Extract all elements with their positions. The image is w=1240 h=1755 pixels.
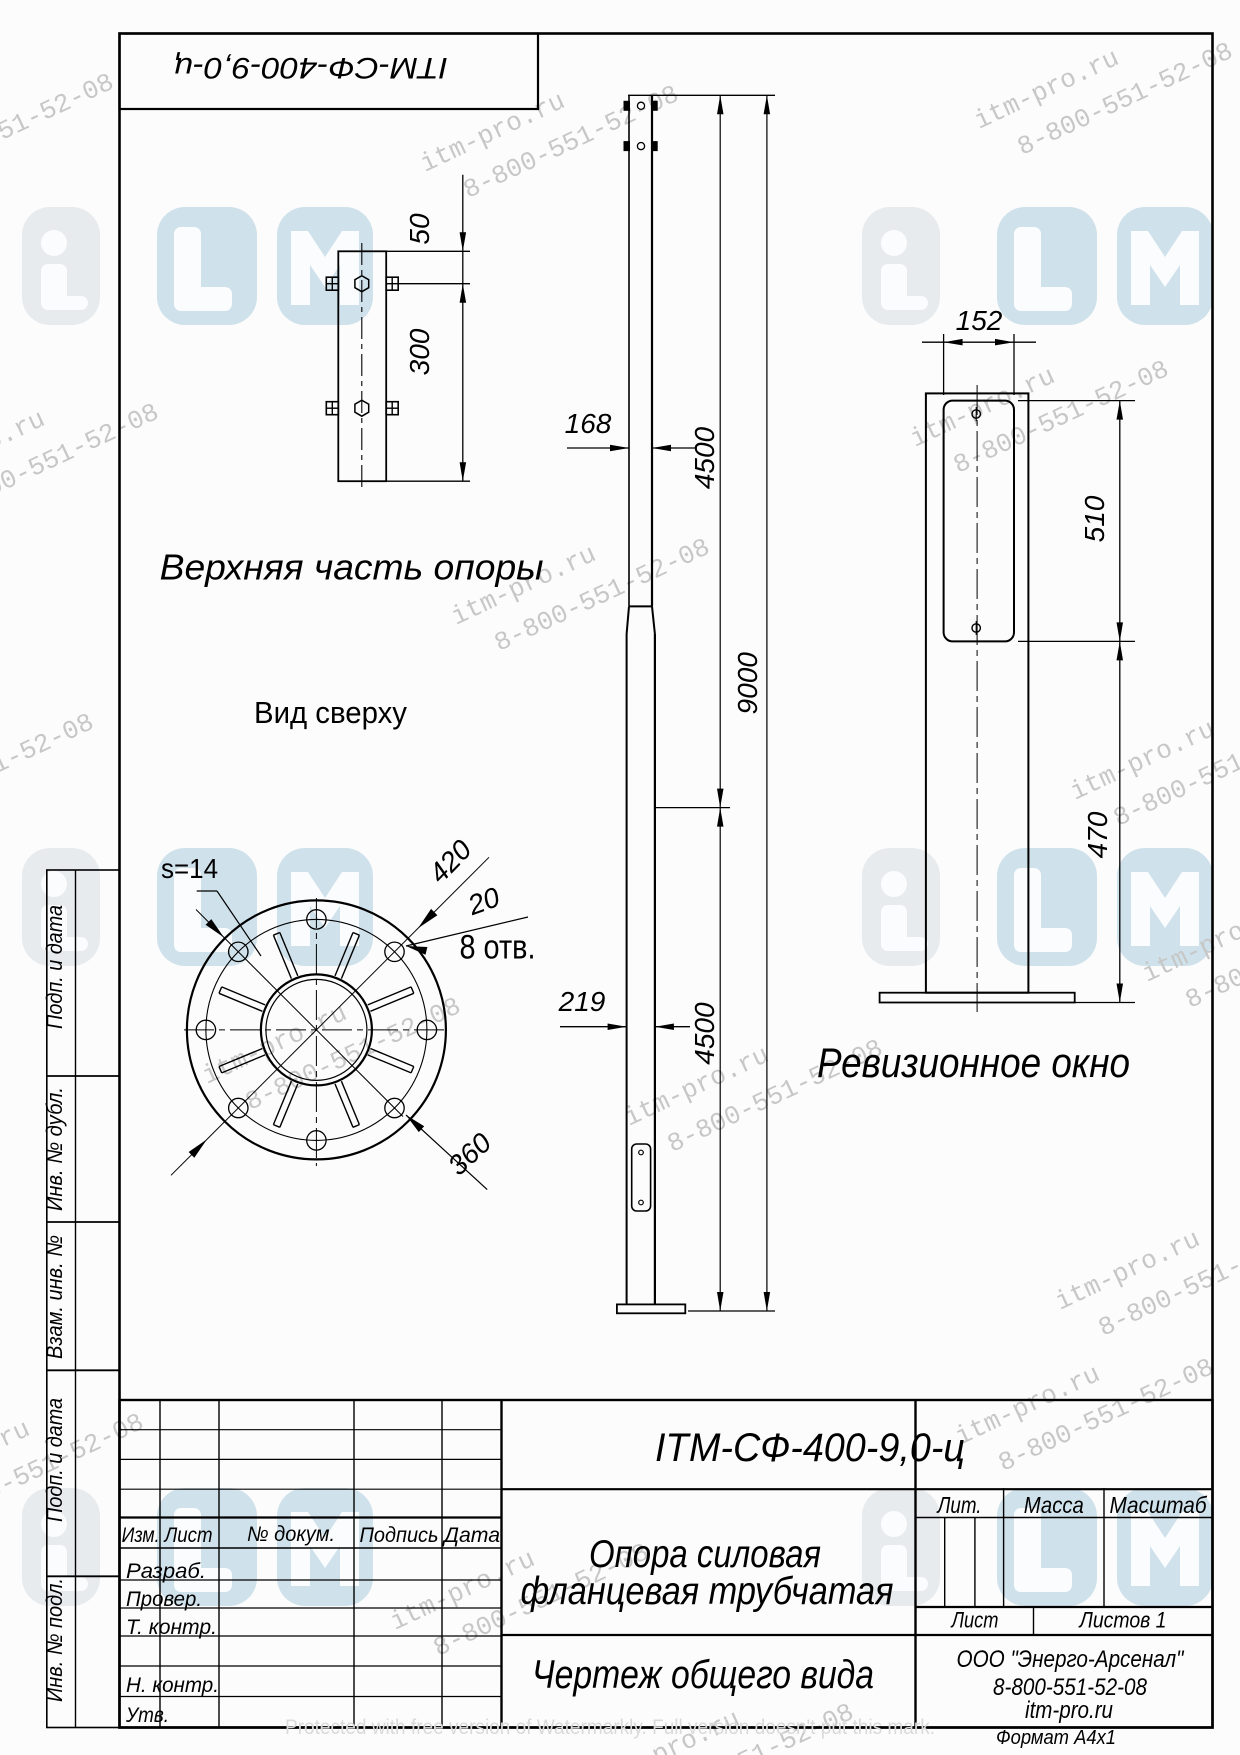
svg-text:Подп. и дата: Подп. и дата [42,1398,67,1522]
svg-text:Инв. № дубл.: Инв. № дубл. [42,1087,67,1211]
svg-text:Лист: Лист [163,1524,213,1547]
svg-text:ООО "Энерго-Арсенал": ООО "Энерго-Арсенал" [957,1646,1185,1673]
svg-text:Масса: Масса [1024,1492,1084,1518]
svg-text:Лит.: Лит. [936,1492,982,1518]
svg-text:Инв. № подл.: Инв. № подл. [42,1578,67,1702]
svg-text:8 отв.: 8 отв. [460,929,536,967]
svg-text:Утв.: Утв. [125,1704,169,1727]
svg-text:Вид сверху: Вид сверху [254,695,407,730]
svg-text:фланцевая трубчатая: фланцевая трубчатая [521,1570,894,1613]
svg-text:Масштаб: Масштаб [1110,1492,1208,1518]
svg-text:168: 168 [565,408,612,439]
svg-text:510: 510 [1079,495,1110,542]
svg-text:ІТМ-СФ-400-9,0-ц: ІТМ-СФ-400-9,0-ц [655,1426,965,1470]
svg-text:itm-pro.ru: itm-pro.ru [1025,1697,1113,1724]
svg-text:Листов 1: Листов 1 [1078,1608,1167,1633]
svg-text:470: 470 [1082,811,1113,858]
svg-text:s=14: s=14 [161,853,218,884]
svg-text:Дата: Дата [442,1524,500,1547]
svg-text:Protected with free version of: Protected with free version of Watermark… [285,1716,935,1739]
svg-text:Ревизионное окно: Ревизионное окно [817,1039,1130,1086]
svg-text:4500: 4500 [689,426,720,489]
svg-text:219: 219 [558,986,606,1017]
svg-text:300: 300 [404,328,435,375]
svg-text:Подпись: Подпись [360,1524,439,1547]
svg-text:Разраб.: Разраб. [126,1560,206,1583]
svg-text:Взам. инв. №: Взам. инв. № [42,1235,67,1359]
svg-text:Н. контр.: Н. контр. [126,1674,219,1697]
svg-text:№ докум.: № докум. [247,1523,335,1546]
svg-text:Подп. и дата: Подп. и дата [42,905,67,1029]
svg-text:Изм.: Изм. [122,1524,160,1547]
svg-text:Верхняя часть опоры: Верхняя часть опоры [160,547,544,588]
svg-text:50: 50 [404,213,435,245]
svg-text:Т. контр.: Т. контр. [126,1616,217,1639]
svg-text:Чертеж общего вида: Чертеж общего вида [532,1653,874,1697]
svg-text:9000: 9000 [732,652,763,715]
svg-text:ІТМ-СФ-400-9,0-ц: ІТМ-СФ-400-9,0-ц [174,51,448,84]
svg-text:Провер.: Провер. [126,1588,202,1611]
svg-text:4500: 4500 [689,1002,720,1065]
svg-text:Формат А4х1: Формат А4х1 [996,1727,1116,1749]
svg-text:152: 152 [956,305,1003,336]
svg-text:Лист: Лист [950,1608,999,1633]
